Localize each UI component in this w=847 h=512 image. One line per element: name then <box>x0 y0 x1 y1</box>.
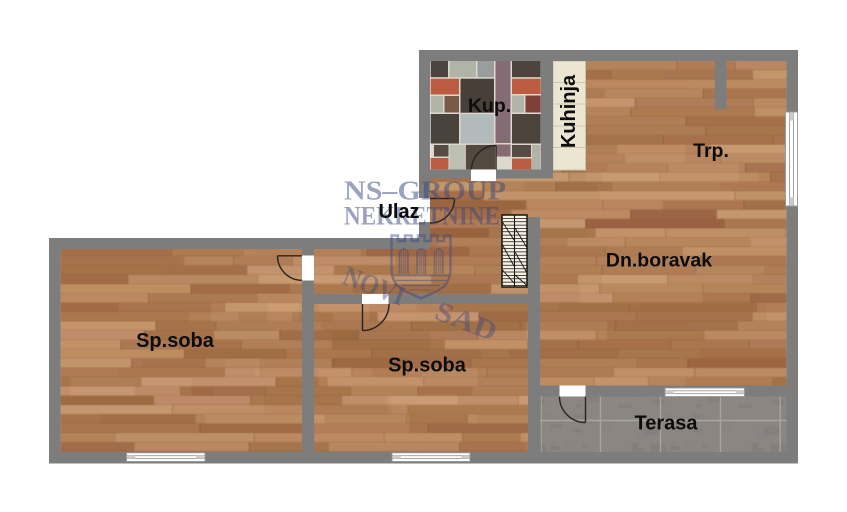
svg-text:Sp.soba: Sp.soba <box>136 330 215 352</box>
svg-text:Ulaz: Ulaz <box>378 201 419 223</box>
svg-text:Terasa: Terasa <box>634 413 698 435</box>
svg-text:Kuhinja: Kuhinja <box>558 74 580 148</box>
svg-text:Sp.soba: Sp.soba <box>388 355 467 377</box>
svg-text:Trp.: Trp. <box>693 140 729 162</box>
svg-text:NEKRETNINE: NEKRETNINE <box>344 202 500 231</box>
svg-text:Kup.: Kup. <box>468 95 511 117</box>
svg-text:Dn.boravak: Dn.boravak <box>606 250 712 272</box>
